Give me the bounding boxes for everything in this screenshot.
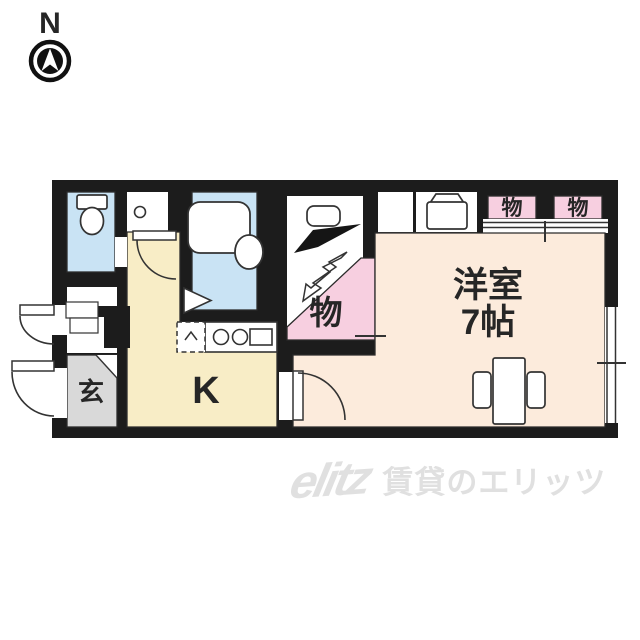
western-room-label-line2: 7帖 [461, 303, 515, 342]
refrigerator-space-icon [177, 322, 205, 352]
closet-middle-label: 物 [310, 294, 343, 331]
north-compass: N [31, 7, 69, 80]
watermark-text: 賃貸のエリッツ [382, 457, 606, 502]
alcove-left [378, 192, 413, 232]
western-room-label-line1: 洋室 [453, 265, 523, 305]
entrance-label: 玄 [78, 377, 104, 407]
toilet-door-opening [115, 237, 127, 267]
watermark: elitz 賃貸のエリッツ [292, 452, 606, 507]
washing-machine-icon [427, 194, 467, 229]
entry-door-opening [52, 368, 67, 418]
side-closet-door [20, 305, 54, 344]
washbasin-nook [127, 192, 168, 232]
closet-top-right-label: 物 [568, 196, 589, 220]
floorplan-canvas: N [0, 0, 640, 640]
closet-top-left-label: 物 [502, 196, 523, 220]
room-door-opening [279, 372, 293, 420]
north-label: N [39, 7, 61, 40]
entrance-door [12, 361, 54, 416]
watermark-logo: elitz [285, 449, 375, 509]
toilet-icon [77, 195, 107, 235]
kitchen-corridor [127, 232, 180, 427]
floorplan-page: N [0, 0, 640, 640]
kitchen-label: K [192, 370, 220, 412]
kitchen-counter-icon [205, 322, 277, 352]
washbasin-icon [135, 207, 146, 218]
western-room-ext [293, 355, 375, 427]
